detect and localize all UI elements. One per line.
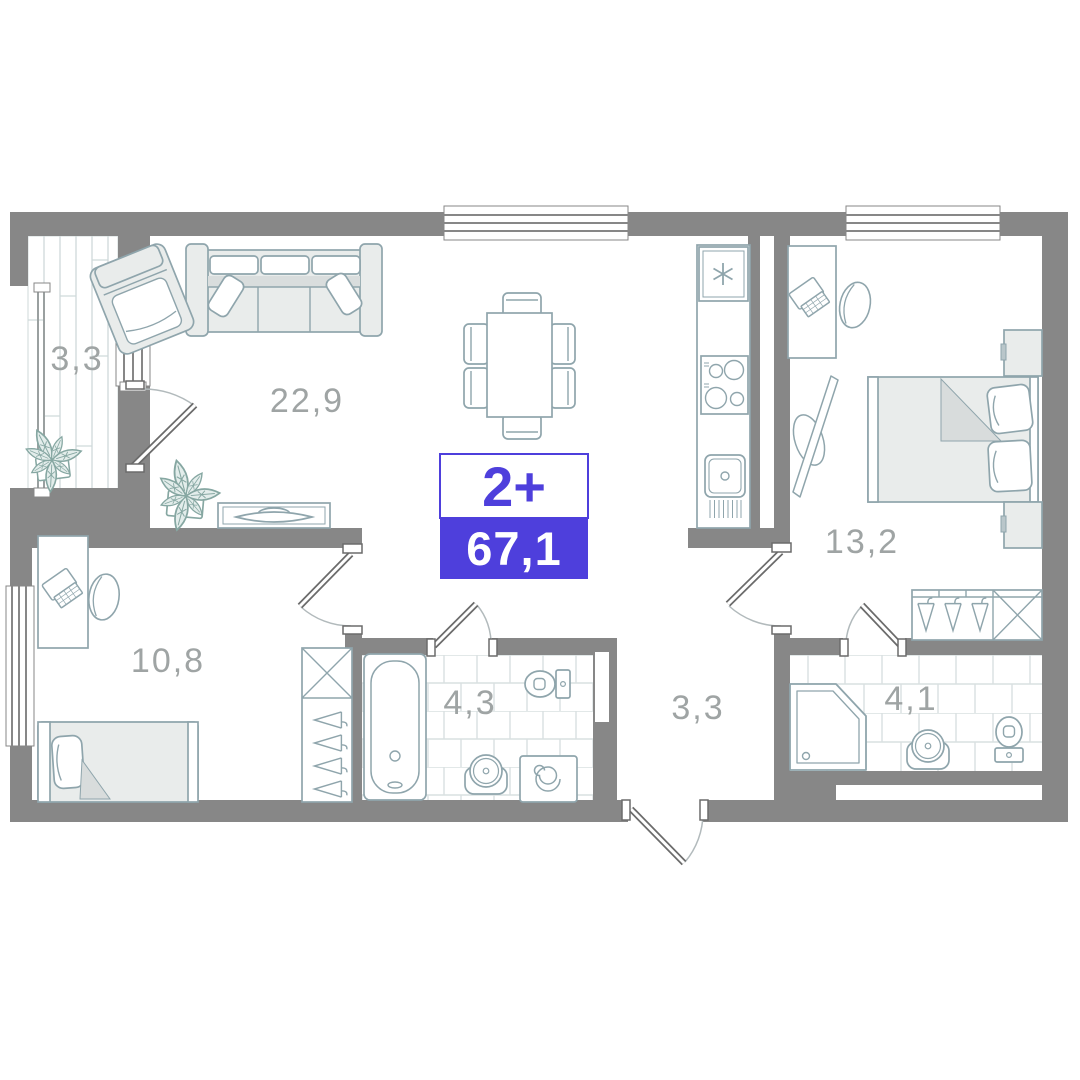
toilet <box>525 670 570 698</box>
door-bedroom <box>728 543 791 634</box>
badge-layout: 2+ <box>482 455 546 518</box>
bedroom-desk <box>788 246 836 358</box>
window-bedroom <box>846 206 1000 240</box>
double-bed <box>868 377 1038 502</box>
kitchen-counter <box>697 245 750 528</box>
bedroom-chair <box>836 279 875 330</box>
room-area-balcony: 3,3 <box>50 340 103 378</box>
floor-plan: 3,3 22,9 13,2 10,8 4,3 3,3 4,1 2+ 67,1 <box>0 0 1080 1080</box>
door-room-second <box>300 544 362 634</box>
window-living <box>444 206 628 240</box>
room-area-bedroom: 13,2 <box>825 523 899 561</box>
stove-icon <box>701 356 748 414</box>
fridge-icon <box>699 247 748 301</box>
tv-console <box>218 503 330 528</box>
second-room-chair <box>86 572 122 622</box>
badge-total-area: 67,1 <box>466 522 561 575</box>
nightstand-bottom <box>1001 502 1042 548</box>
washing-machine <box>520 756 577 802</box>
room-area-living: 22,9 <box>270 382 344 420</box>
ensuite-toilet <box>995 717 1023 762</box>
floor-mirror <box>788 376 838 497</box>
nightstand-top <box>1001 330 1042 376</box>
door-ensuite <box>840 605 906 656</box>
room-area-bathroom: 4,3 <box>443 684 496 722</box>
dining-table-set <box>464 293 575 439</box>
bathtub <box>364 654 426 800</box>
wall-niche <box>595 652 609 722</box>
room-area-second: 10,8 <box>131 642 205 680</box>
floor-plan-page: 3,3 22,9 13,2 10,8 4,3 3,3 4,1 2+ 67,1 <box>0 0 1080 1080</box>
window-room-second <box>6 586 34 746</box>
area-badge: 2+ 67,1 <box>440 454 588 579</box>
room-area-hallway: 3,3 <box>671 689 724 727</box>
second-room-desk <box>38 536 88 648</box>
bedroom-wardrobe <box>912 590 1042 640</box>
second-room-wardrobe <box>302 648 352 802</box>
door-bathroom <box>427 604 497 656</box>
door-entrance <box>622 800 708 863</box>
sofa <box>186 244 382 336</box>
room-area-ensuite: 4,1 <box>884 680 937 718</box>
single-bed <box>38 722 198 802</box>
plant-living <box>158 459 220 532</box>
